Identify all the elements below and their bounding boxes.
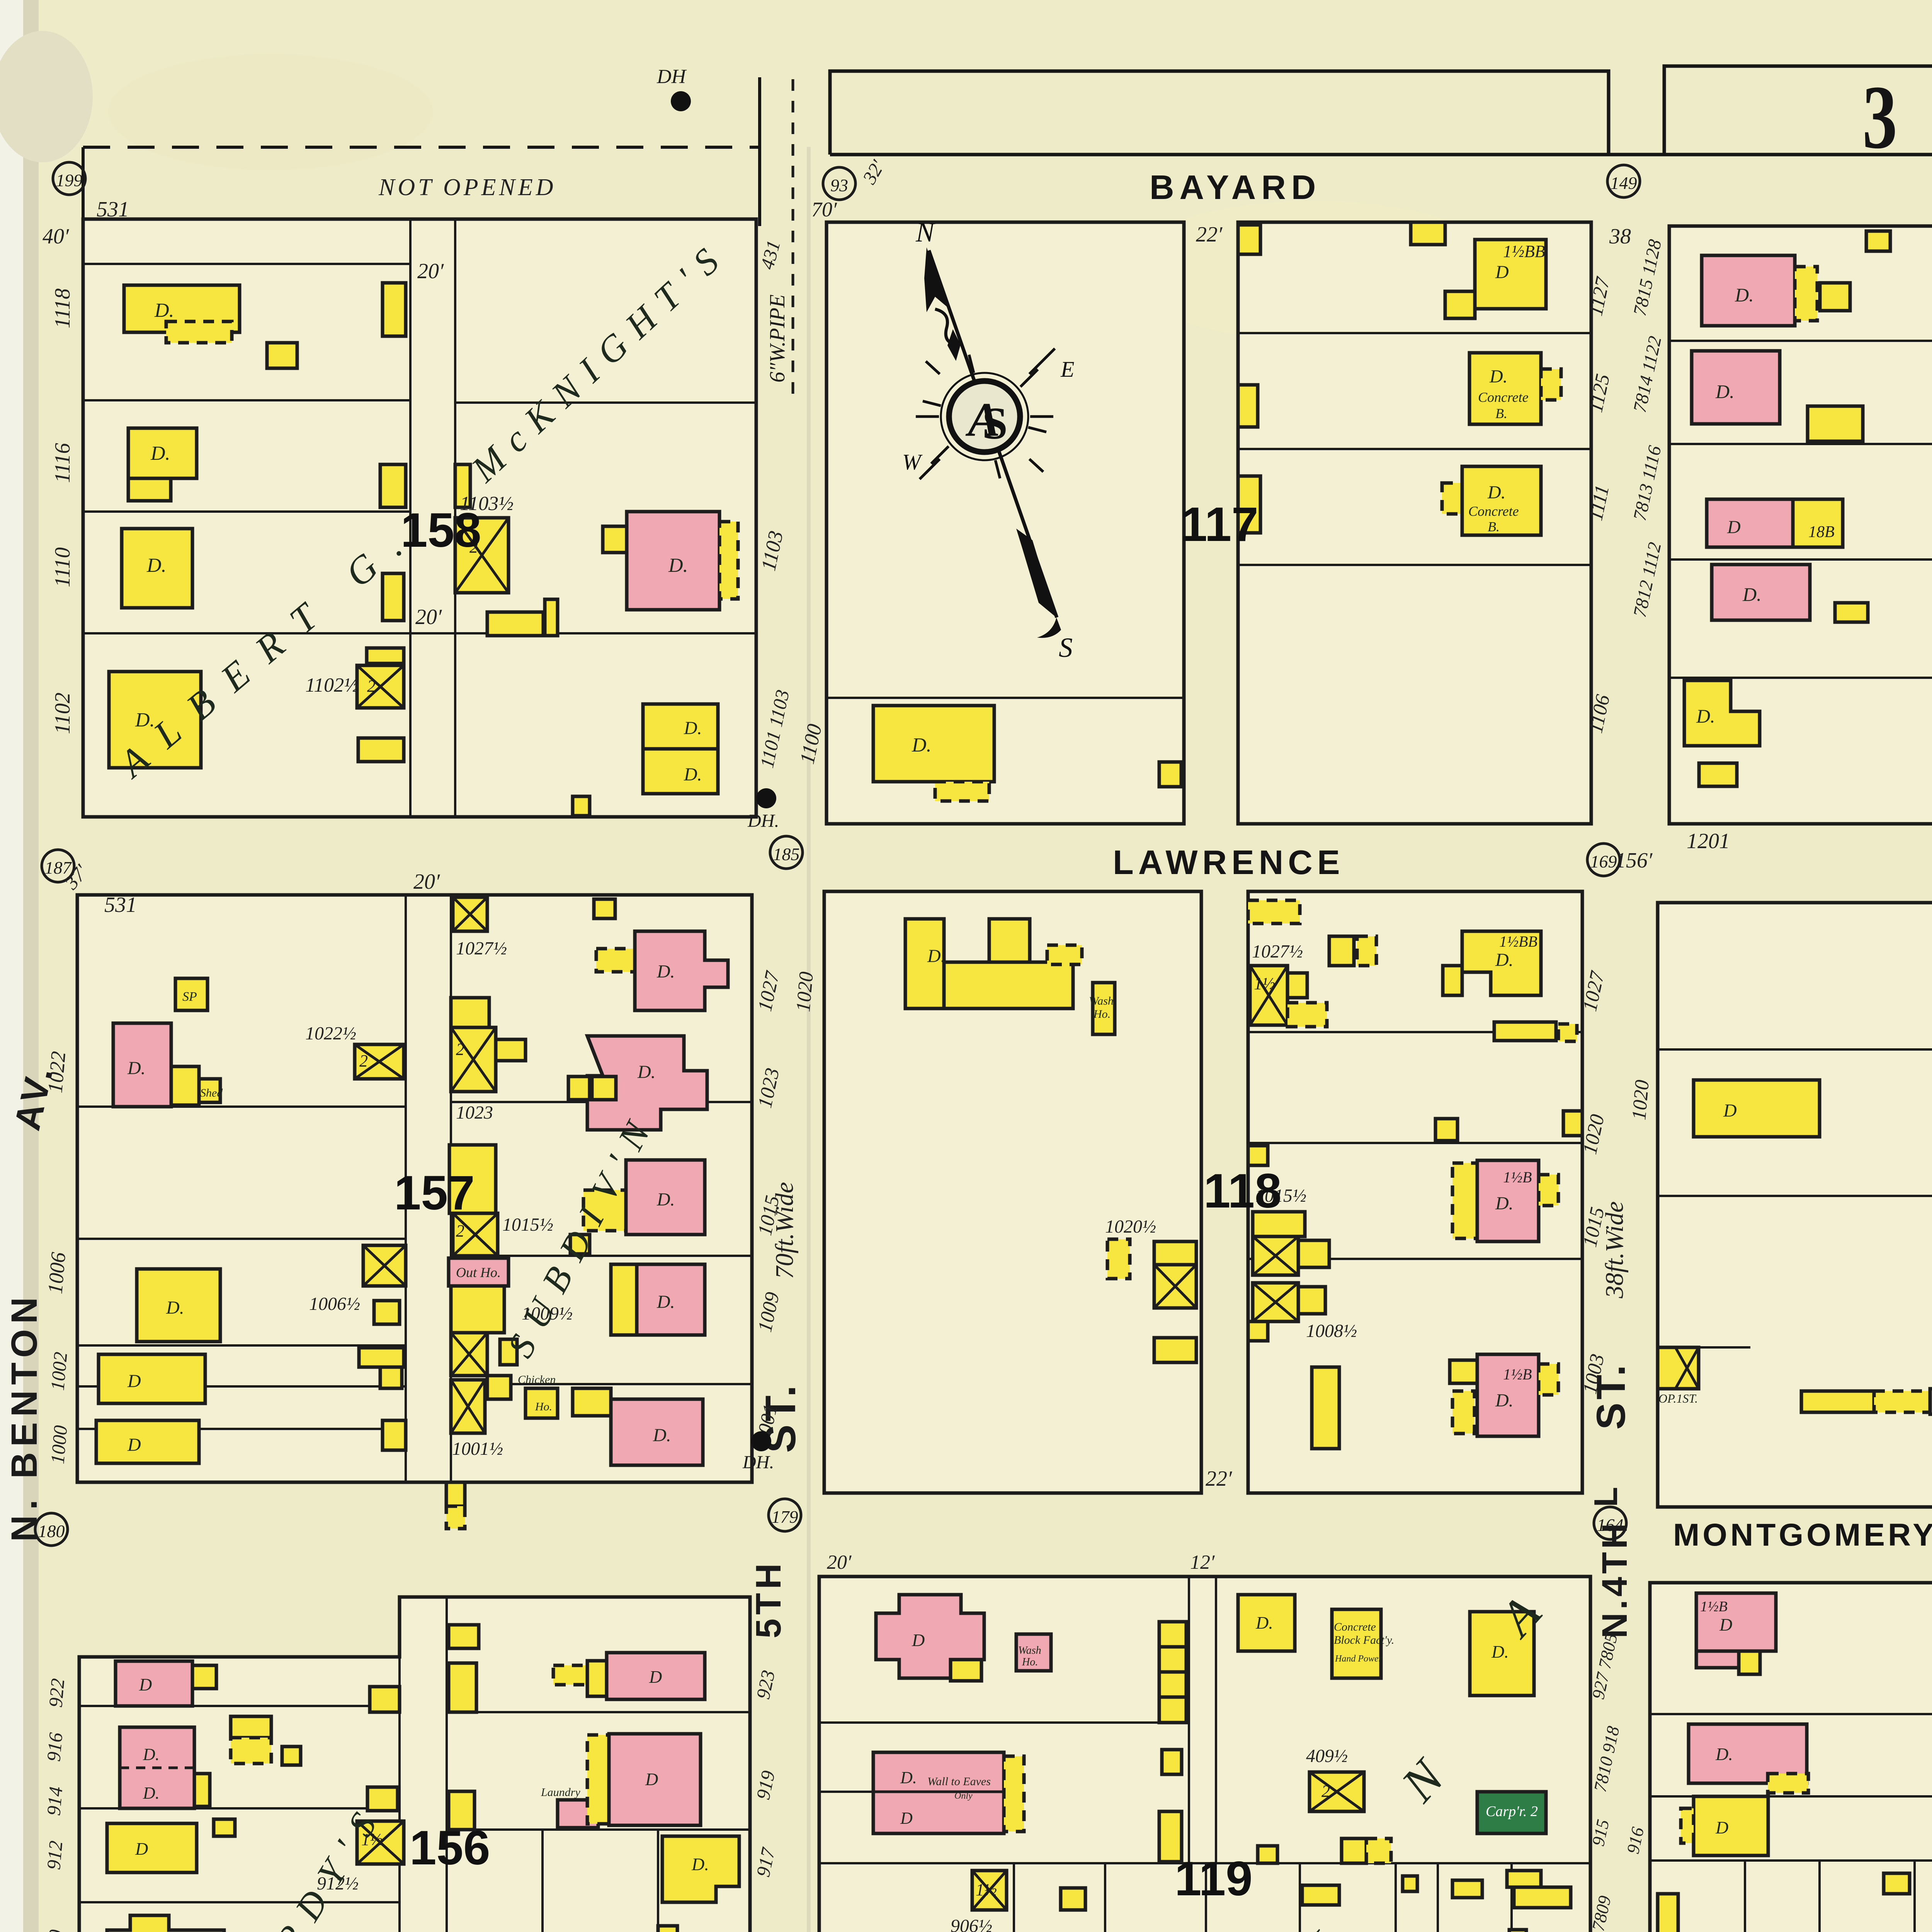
svg-text:1020: 1020	[1628, 1079, 1653, 1121]
svg-text:LAWRENCE: LAWRENCE	[1113, 843, 1345, 881]
svg-text:D.: D.	[127, 1058, 146, 1078]
svg-text:DH: DH	[656, 66, 687, 88]
svg-text:22′: 22′	[1196, 223, 1223, 247]
svg-text:6″W.PIPE: 6″W.PIPE	[765, 294, 789, 383]
svg-text:164: 164	[1597, 1515, 1624, 1535]
svg-text:D.: D.	[166, 1298, 184, 1318]
svg-text:12′: 12′	[1190, 1551, 1215, 1573]
svg-text:922: 922	[44, 1677, 68, 1708]
svg-text:531: 531	[97, 197, 129, 221]
svg-text:38: 38	[1609, 224, 1631, 248]
svg-text:OP.1ST.: OP.1ST.	[1658, 1391, 1698, 1405]
svg-text:3: 3	[1862, 67, 1897, 167]
svg-text:906½: 906½	[951, 1916, 992, 1932]
svg-text:1006: 1006	[43, 1251, 70, 1295]
svg-text:Chicken: Chicken	[518, 1373, 556, 1386]
svg-text:Laundry: Laundry	[541, 1786, 580, 1799]
svg-text:1201: 1201	[1687, 829, 1730, 853]
svg-text:D: D	[912, 1630, 925, 1650]
svg-text:Hand Power: Hand Power	[1335, 1654, 1383, 1664]
svg-text:199: 199	[56, 170, 83, 190]
svg-text:D: D	[1719, 1615, 1732, 1634]
svg-text:S: S	[1059, 632, 1073, 663]
svg-text:D: D	[900, 1809, 913, 1828]
svg-text:B.: B.	[1495, 406, 1507, 421]
svg-text:N: N	[915, 217, 936, 248]
svg-text:D.: D.	[927, 946, 946, 966]
svg-text:1020½: 1020½	[1105, 1216, 1156, 1237]
svg-text:Concrete: Concrete	[1478, 389, 1529, 405]
svg-text:Wall to Eaves: Wall to Eaves	[927, 1775, 991, 1788]
svg-text:DH.: DH.	[742, 1452, 774, 1473]
svg-text:169: 169	[1590, 852, 1617, 871]
svg-text:D.: D.	[1696, 705, 1715, 727]
svg-text:1½BB: 1½BB	[1499, 933, 1537, 950]
svg-text:BAYARD: BAYARD	[1150, 168, 1321, 206]
svg-text:1001½: 1001½	[452, 1439, 503, 1459]
svg-text:D.: D.	[1491, 1642, 1509, 1662]
svg-text:Ho.: Ho.	[1093, 1008, 1111, 1020]
svg-text:20′: 20′	[413, 870, 440, 894]
svg-text:20′: 20′	[417, 259, 444, 283]
svg-text:20′: 20′	[415, 605, 442, 629]
svg-text:D.: D.	[1495, 1390, 1514, 1411]
svg-text:D: D	[1715, 1818, 1728, 1837]
svg-text:D.: D.	[653, 1425, 671, 1446]
svg-text:Wash: Wash	[1018, 1645, 1041, 1656]
svg-text:D: D	[645, 1769, 658, 1789]
svg-text:531: 531	[104, 893, 137, 917]
svg-text:1023: 1023	[456, 1102, 493, 1123]
svg-text:D.: D.	[691, 1854, 709, 1874]
svg-text:1008½: 1008½	[1306, 1321, 1357, 1341]
svg-text:1102½: 1102½	[305, 674, 359, 696]
svg-text:S: S	[982, 398, 1008, 449]
svg-text:409½: 409½	[1306, 1746, 1348, 1766]
svg-text:119: 119	[1175, 1852, 1253, 1906]
svg-text:D: D	[1723, 1100, 1737, 1121]
svg-text:D.: D.	[668, 554, 688, 577]
svg-text:93: 93	[830, 175, 848, 195]
svg-text:D.: D.	[154, 299, 174, 321]
svg-text:D: D	[135, 1839, 148, 1859]
svg-text:185: 185	[773, 844, 800, 864]
svg-text:1020: 1020	[792, 971, 818, 1013]
svg-text:D: D	[127, 1371, 141, 1391]
svg-text:Out Ho.: Out Ho.	[456, 1265, 501, 1280]
svg-text:D: D	[127, 1435, 141, 1455]
svg-text:Shed: Shed	[200, 1087, 223, 1099]
svg-text:914: 914	[43, 1786, 66, 1816]
svg-text:1½B: 1½B	[1503, 1366, 1532, 1383]
svg-text:D: D	[1495, 262, 1509, 282]
svg-text:D.: D.	[1487, 482, 1506, 503]
svg-text:Carp'r. 2: Carp'r. 2	[1486, 1803, 1538, 1820]
svg-text:N. BENTON: N. BENTON	[4, 1292, 45, 1542]
svg-text:180: 180	[38, 1521, 65, 1541]
svg-text:20′: 20′	[827, 1551, 852, 1573]
svg-text:Concrete: Concrete	[1468, 503, 1519, 519]
svg-text:D.: D.	[656, 961, 675, 982]
svg-text:40′: 40′	[43, 224, 69, 248]
svg-text:5TH: 5TH	[749, 1560, 788, 1638]
svg-text:1116: 1116	[51, 443, 75, 483]
svg-text:1027½: 1027½	[456, 938, 507, 959]
svg-text:Wash: Wash	[1089, 995, 1114, 1007]
svg-text:D.: D.	[1742, 583, 1762, 605]
svg-text:D.: D.	[1715, 1744, 1733, 1764]
svg-text:D: D	[649, 1667, 662, 1687]
svg-text:D: D	[1727, 517, 1741, 537]
svg-text:916: 916	[43, 1731, 66, 1762]
svg-text:Block Fact'y.: Block Fact'y.	[1334, 1634, 1394, 1646]
svg-text:D.: D.	[143, 1745, 160, 1764]
svg-text:W: W	[902, 449, 923, 474]
svg-text:1118: 1118	[51, 288, 75, 328]
svg-text:E: E	[1060, 357, 1074, 382]
svg-text:1022½: 1022½	[305, 1023, 356, 1044]
svg-text:B.: B.	[1488, 519, 1500, 534]
svg-text:D.: D.	[1715, 381, 1735, 402]
svg-text:D.: D.	[135, 709, 155, 731]
svg-text:D.: D.	[684, 718, 702, 738]
svg-text:D.: D.	[146, 554, 167, 577]
svg-text:DH.: DH.	[747, 811, 779, 831]
svg-text:Ho.: Ho.	[535, 1400, 552, 1413]
svg-text:D.: D.	[684, 764, 702, 785]
svg-text:Only: Only	[954, 1791, 973, 1801]
svg-text:118: 118	[1204, 1164, 1282, 1218]
svg-text:1027½: 1027½	[1252, 941, 1303, 962]
svg-text:D.: D.	[150, 442, 170, 464]
svg-text:D.: D.	[143, 1784, 160, 1803]
svg-text:912: 912	[43, 1840, 66, 1871]
svg-text:D.: D.	[1735, 284, 1754, 306]
svg-text:156′: 156′	[1615, 849, 1653, 872]
svg-text:70′: 70′	[811, 198, 837, 221]
svg-text:1½B: 1½B	[1503, 1168, 1532, 1186]
svg-text:1022: 1022	[43, 1050, 70, 1094]
svg-text:D.: D.	[912, 734, 932, 756]
svg-text:Concrete: Concrete	[1334, 1621, 1376, 1633]
svg-text:D: D	[139, 1675, 152, 1694]
svg-text:1006½: 1006½	[309, 1294, 360, 1314]
svg-text:117: 117	[1180, 498, 1259, 551]
svg-text:D.: D.	[1255, 1613, 1273, 1633]
svg-text:D.: D.	[1489, 366, 1508, 387]
svg-text:1110: 1110	[51, 547, 75, 587]
svg-text:1015½: 1015½	[502, 1214, 553, 1235]
svg-text:179: 179	[772, 1507, 798, 1527]
svg-text:L: L	[1588, 1487, 1624, 1507]
svg-text:D.: D.	[637, 1062, 656, 1082]
svg-text:18B: 18B	[1808, 523, 1835, 541]
svg-text:MONTGOMERY: MONTGOMERY	[1673, 1517, 1932, 1553]
svg-text:149: 149	[1611, 173, 1637, 193]
svg-text:SP: SP	[182, 990, 197, 1004]
svg-text:1½BB: 1½BB	[1503, 242, 1545, 261]
svg-text:1002: 1002	[46, 1351, 71, 1391]
svg-text:D.: D.	[1495, 950, 1514, 970]
svg-text:1103½: 1103½	[460, 493, 514, 515]
svg-text:157: 157	[394, 1166, 475, 1220]
svg-text:D.: D.	[656, 1292, 675, 1312]
svg-text:D.: D.	[656, 1189, 675, 1210]
svg-text:D.: D.	[900, 1768, 917, 1787]
svg-text:D.: D.	[1495, 1193, 1514, 1214]
svg-text:1½B: 1½B	[1700, 1599, 1728, 1615]
svg-text:22′: 22′	[1206, 1467, 1232, 1491]
svg-text:Ho.: Ho.	[1022, 1656, 1038, 1668]
svg-text:1102: 1102	[51, 692, 75, 734]
svg-text:1000: 1000	[46, 1424, 71, 1465]
svg-text:NOT OPENED: NOT OPENED	[378, 174, 556, 201]
